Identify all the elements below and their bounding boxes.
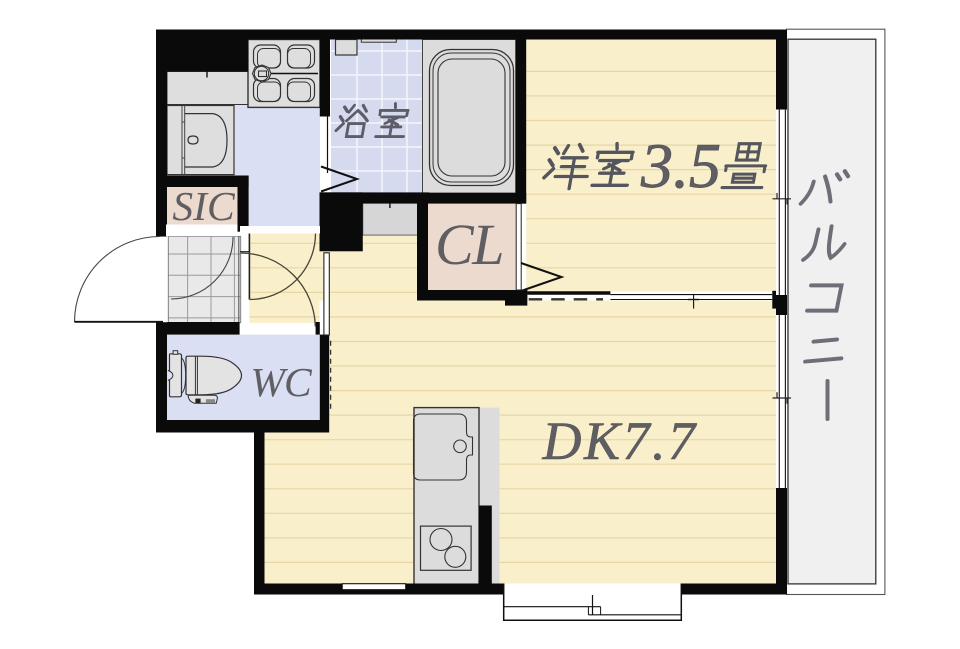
svg-text:WC: WC [250,359,313,405]
svg-text:DK7.7: DK7.7 [541,411,697,471]
svg-text:SIC: SIC [172,183,236,229]
svg-text:CL: CL [435,212,503,277]
svg-text:3.5: 3.5 [640,130,721,201]
